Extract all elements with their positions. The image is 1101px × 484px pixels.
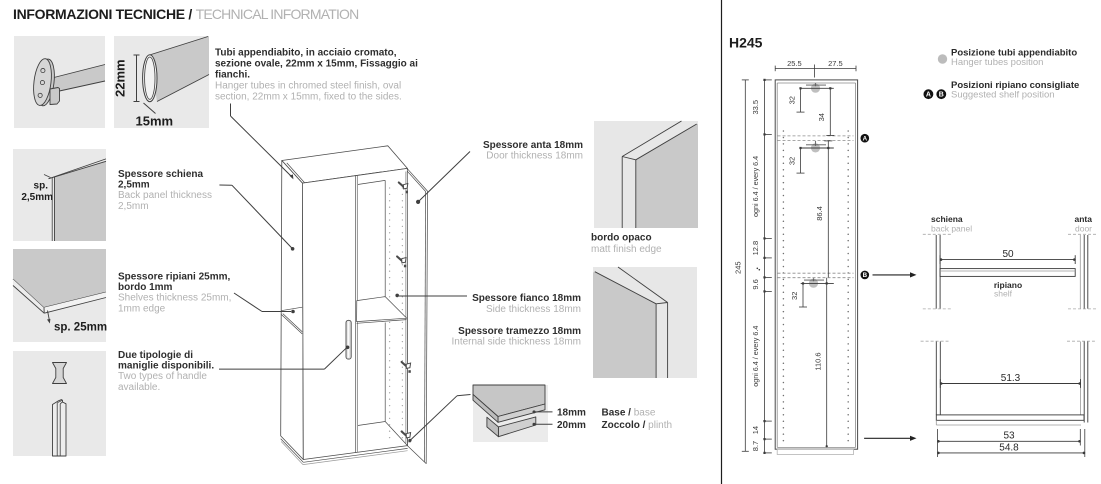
- svg-text:27.5: 27.5: [828, 59, 843, 68]
- svg-text:15mm: 15mm: [136, 114, 174, 129]
- svg-text:sp.: sp.: [34, 181, 49, 192]
- svg-text:Internal side thickness 18mm: Internal side thickness 18mm: [451, 337, 581, 348]
- svg-text:2,5mm: 2,5mm: [118, 180, 150, 191]
- svg-text:bordo opaco: bordo opaco: [591, 232, 652, 243]
- svg-text:51.3: 51.3: [1001, 373, 1021, 384]
- svg-text:18mm: 18mm: [557, 407, 586, 418]
- svg-text:14: 14: [751, 426, 760, 434]
- svg-text:Base / base: Base / base: [602, 407, 656, 418]
- svg-text:245: 245: [734, 261, 743, 274]
- svg-text:34: 34: [817, 113, 826, 121]
- svg-text:Spessore ripiani 25mm,: Spessore ripiani 25mm,: [118, 272, 230, 283]
- svg-text:Spessore anta 18mm: Spessore anta 18mm: [483, 140, 583, 151]
- svg-text:ogni 6.4 / every 6.4: ogni 6.4 / every 6.4: [751, 156, 760, 217]
- svg-text:back panel: back panel: [931, 223, 972, 233]
- svg-text:sp. 25mm: sp. 25mm: [54, 322, 107, 334]
- svg-text:INFORMAZIONI TECNICHE / TECHNI: INFORMAZIONI TECNICHE / TECHNICAL INFORM…: [13, 6, 358, 22]
- svg-text:Shelves thickness 25mm,: Shelves thickness 25mm,: [118, 293, 231, 304]
- svg-text:maniglie disponibili.: maniglie disponibili.: [118, 361, 214, 372]
- svg-text:Tubi appendiabito, in acciaio: Tubi appendiabito, in acciaio cromato,: [215, 48, 397, 59]
- svg-text:H245: H245: [729, 35, 763, 51]
- svg-text:86.4: 86.4: [815, 206, 824, 221]
- svg-text:12.8: 12.8: [751, 241, 760, 256]
- svg-text:33.5: 33.5: [751, 100, 760, 115]
- svg-text:25.5: 25.5: [787, 59, 802, 68]
- svg-text:Hanger tubes in chromed steel: Hanger tubes in chromed steel finish, ov…: [215, 81, 401, 92]
- svg-text:53: 53: [1003, 431, 1015, 442]
- svg-text:22mm: 22mm: [113, 59, 128, 97]
- svg-text:Spessore fianco 18mm: Spessore fianco 18mm: [472, 293, 581, 304]
- svg-text:A: A: [926, 92, 931, 99]
- svg-text:ogni 6.4 / every 6.4: ogni 6.4 / every 6.4: [751, 326, 760, 387]
- svg-text:110.6: 110.6: [814, 352, 823, 370]
- svg-text:Spessore tramezzo 18mm: Spessore tramezzo 18mm: [458, 326, 581, 337]
- svg-text:Spessore schiena: Spessore schiena: [118, 169, 203, 180]
- svg-text:B: B: [863, 272, 868, 279]
- svg-text:shelf: shelf: [994, 288, 1013, 298]
- svg-text:Hanger tubes position: Hanger tubes position: [951, 57, 1043, 68]
- svg-text:20mm: 20mm: [557, 420, 586, 431]
- svg-text:9.6: 9.6: [751, 279, 760, 289]
- svg-text:Back panel thickness: Back panel thickness: [118, 190, 212, 201]
- svg-text:bordo 1mm: bordo 1mm: [118, 282, 173, 293]
- svg-text:A: A: [863, 136, 868, 143]
- svg-text:door: door: [1075, 223, 1092, 233]
- svg-text:fianchi.: fianchi.: [215, 70, 250, 81]
- svg-text:Door thickness 18mm: Door thickness 18mm: [486, 151, 583, 162]
- svg-text:B: B: [939, 92, 944, 99]
- svg-text:Zoccolo / plinth: Zoccolo / plinth: [602, 420, 673, 431]
- svg-text:available.: available.: [118, 382, 160, 393]
- svg-text:2,5mm: 2,5mm: [118, 201, 149, 212]
- svg-text:Side thickness 18mm: Side thickness 18mm: [486, 304, 581, 315]
- svg-text:Two types of handle: Two types of handle: [118, 371, 207, 382]
- svg-text:54.8: 54.8: [999, 442, 1019, 453]
- svg-text:Due tipologie di: Due tipologie di: [118, 350, 193, 361]
- svg-text:matt finish edge: matt finish edge: [591, 244, 662, 255]
- svg-text:50: 50: [1002, 249, 1014, 260]
- svg-text:32: 32: [787, 157, 796, 165]
- svg-text:sezione ovale, 22mm x 15mm, Fi: sezione ovale, 22mm x 15mm, Fissaggio ai: [215, 59, 418, 70]
- svg-text:8.7: 8.7: [751, 441, 760, 451]
- svg-text:32: 32: [790, 292, 799, 300]
- svg-text:2,5mm: 2,5mm: [21, 192, 53, 203]
- svg-text:1mm edge: 1mm edge: [118, 303, 166, 314]
- svg-text:Suggested shelf position: Suggested shelf position: [951, 90, 1055, 101]
- svg-text:section, 22mm x 15mm, fixed to: section, 22mm x 15mm, fixed to the sides…: [215, 92, 402, 103]
- svg-text:32: 32: [787, 96, 796, 104]
